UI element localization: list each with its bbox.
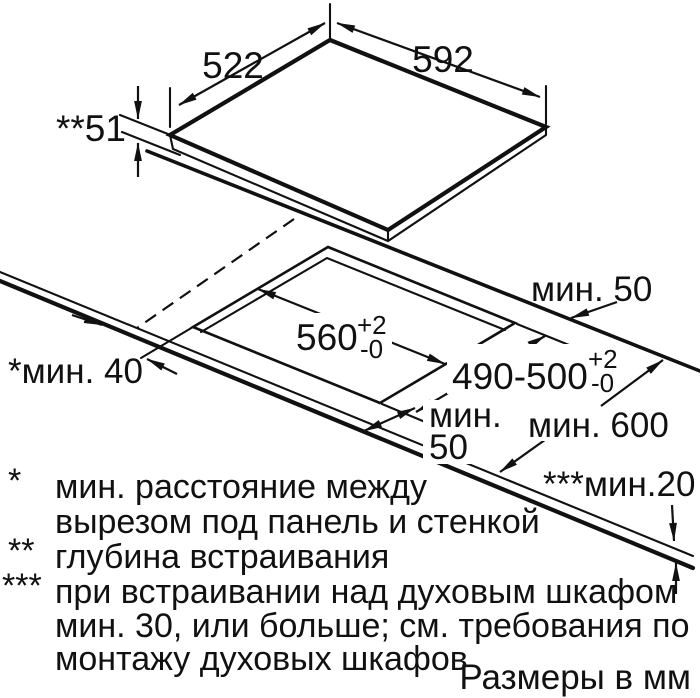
dim-592: 592 — [337, 23, 546, 124]
dim-592-label: 592 — [412, 39, 474, 80]
footnote3-line3: монтажу духовых шкафов — [55, 640, 468, 678]
min600-label: мин. 600 — [528, 406, 669, 445]
dim-560-tol-minus: -0 — [360, 334, 383, 364]
footnote1-line1: мин. расстояние между — [55, 468, 427, 506]
footnote3-marker: *** — [2, 567, 42, 605]
dim-522-label: 522 — [202, 45, 264, 86]
min20-label: ***мин.20 — [543, 465, 695, 504]
installation-diagram: 522 592 **51 560 +2 -0 490-500 +2 -0 мин… — [0, 0, 700, 698]
footnote1-line2: вырезом под панель и стенкой — [55, 503, 540, 541]
dim-min40-side: *мин. 40 — [8, 315, 177, 391]
min20-arrow-down — [672, 505, 674, 541]
min50-back-label: мин. 50 — [531, 270, 652, 309]
worktop-back-edge — [147, 151, 700, 371]
dim-490-tol-minus: -0 — [591, 368, 614, 398]
dim-560: 560 +2 -0 — [258, 289, 445, 364]
dim-560-label: 560 — [296, 317, 358, 358]
min40-arrow-lower — [147, 359, 177, 374]
footnote2-line1: глубина встраивания — [55, 538, 389, 576]
dim-522: 522 — [170, 4, 330, 127]
footnote1-marker: * — [8, 462, 21, 500]
projection-dashed-line — [137, 219, 294, 328]
diagram-canvas: 522 592 **51 560 +2 -0 490-500 +2 -0 мин… — [0, 0, 700, 698]
dim-51-label: **51 — [56, 108, 126, 149]
min50-front-value: 50 — [429, 428, 468, 467]
footnote3-line1: при встраивании над духовым шкафом — [55, 573, 677, 611]
min40-label: *мин. 40 — [8, 352, 143, 391]
dim-490-label: 490-500 — [452, 356, 588, 397]
min50-front-arrow — [364, 408, 415, 431]
cutout-extension-right — [517, 324, 574, 347]
dim-51: **51 — [56, 86, 180, 177]
footnote2-marker: ** — [8, 532, 34, 570]
units-note: Размеры в мм — [459, 658, 691, 697]
